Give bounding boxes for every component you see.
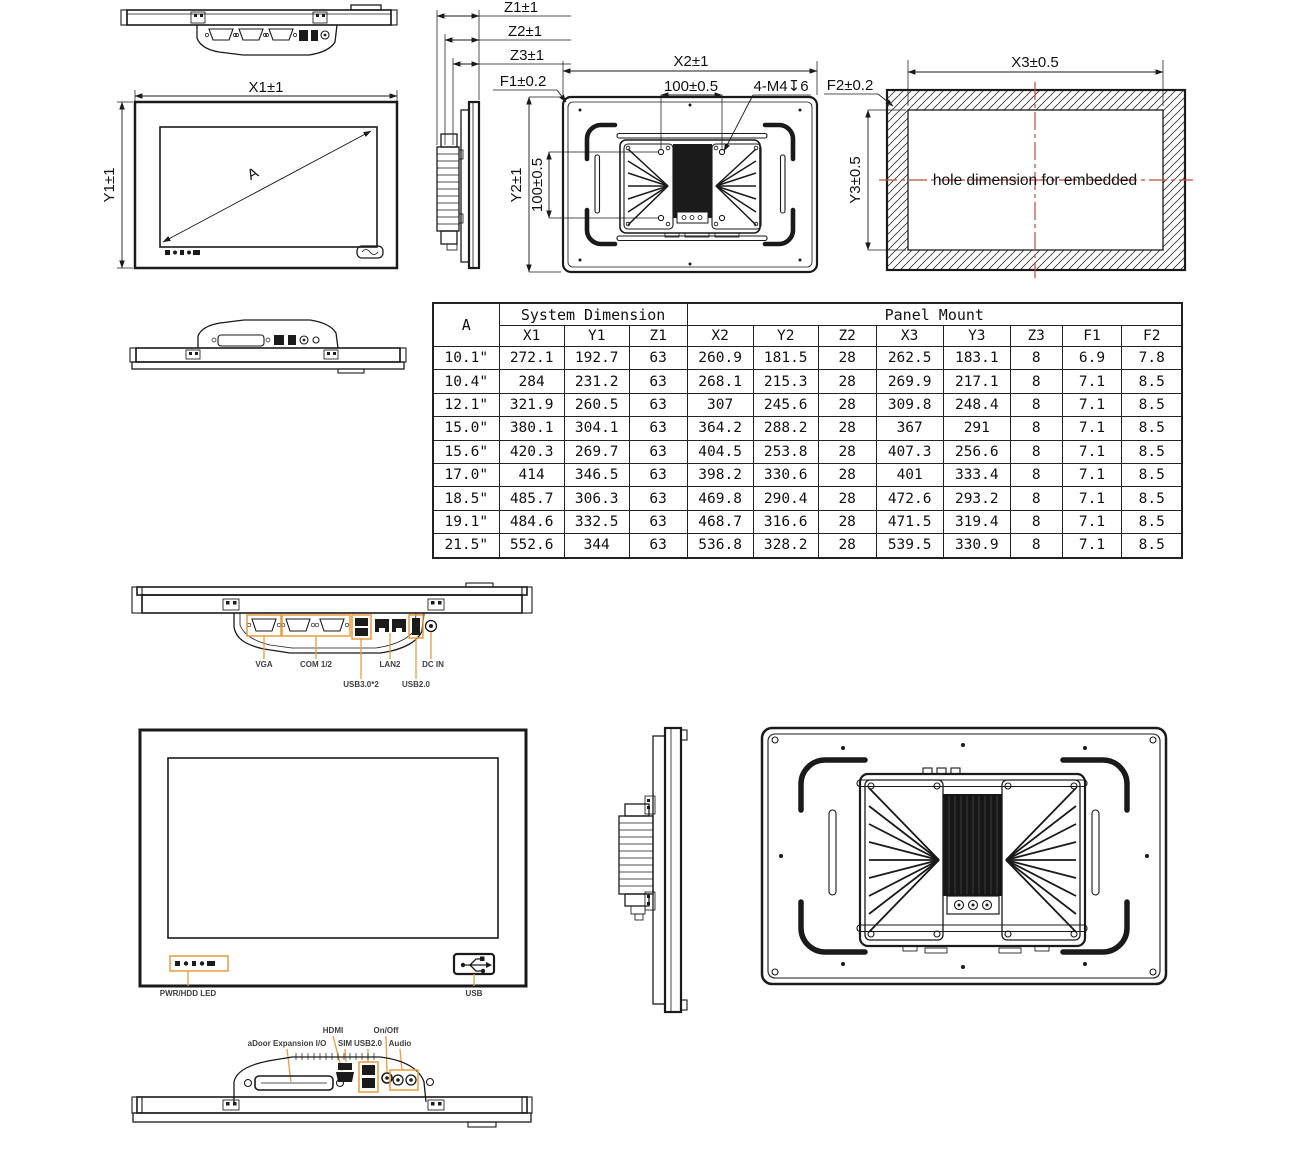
value-cell: 420.3 <box>499 440 564 463</box>
col-y3: Y3 <box>943 326 1010 347</box>
col-x1: X1 <box>499 326 564 347</box>
usb-port <box>311 30 318 41</box>
rear-view-large <box>753 718 1175 998</box>
value-cell: 268.1 <box>687 370 753 393</box>
cutout-view: F2±0.2 X3±0.5 hole dimension for embedde… <box>818 48 1200 284</box>
size-cell: 15.6" <box>433 440 499 463</box>
dim-x2: X2±1 <box>674 53 709 70</box>
value-cell: 293.2 <box>943 487 1010 510</box>
table-row: 17.0"414346.563398.2330.628401333.487.18… <box>433 463 1182 486</box>
value-cell: 7.1 <box>1062 370 1122 393</box>
value-cell: 398.2 <box>687 463 753 486</box>
size-cell: 18.5" <box>433 487 499 510</box>
dim-vesa-v: 100±0.5 <box>529 158 546 212</box>
col-z2: Z2 <box>818 326 876 347</box>
table-row: 10.1"272.1192.763260.9181.528262.5183.18… <box>433 347 1182 370</box>
size-cell: 10.1" <box>433 347 499 370</box>
value-cell: 7.1 <box>1062 463 1122 486</box>
value-cell: 272.1 <box>499 347 564 370</box>
value-cell: 8.5 <box>1122 510 1182 533</box>
value-cell: 28 <box>818 393 876 416</box>
top-io-view: aDoor Expansion I/O HDMI SIM USB2.0 On/O… <box>128 1024 536 1136</box>
col-f1: F1 <box>1062 326 1122 347</box>
value-cell: 192.7 <box>564 347 629 370</box>
table-row: 10.4"284231.263268.1215.328269.9217.187.… <box>433 370 1182 393</box>
side-view-large <box>603 720 707 1020</box>
value-cell: 8 <box>1010 534 1062 558</box>
value-cell: 328.2 <box>753 534 818 558</box>
value-cell: 471.5 <box>876 510 943 533</box>
dim-thread: 4-M4↧6 <box>753 78 808 95</box>
value-cell: 8 <box>1010 347 1062 370</box>
value-cell: 63 <box>629 440 687 463</box>
value-cell: 291 <box>943 417 1010 440</box>
io-leader-lines <box>264 632 431 679</box>
value-cell: 63 <box>629 393 687 416</box>
value-cell: 28 <box>818 440 876 463</box>
value-cell: 380.1 <box>499 417 564 440</box>
antenna-hole <box>427 1079 434 1086</box>
table-row: 19.1"484.6332.563468.7316.628471.5319.48… <box>433 510 1182 533</box>
label-vga: VGA <box>255 660 273 669</box>
value-cell: 484.6 <box>499 510 564 533</box>
dim-z2: Z2±1 <box>508 23 542 40</box>
value-cell: 333.4 <box>943 463 1010 486</box>
value-cell: 536.8 <box>687 534 753 558</box>
value-cell: 63 <box>629 487 687 510</box>
value-cell: 28 <box>818 347 876 370</box>
label-audio: Audio <box>389 1039 412 1048</box>
db-connectors <box>205 29 296 40</box>
cutout-note: hole dimension for embedded <box>933 172 1137 189</box>
table-row: 12.1"321.9260.563307245.628309.8248.487.… <box>433 393 1182 416</box>
vesa-hole <box>719 215 724 220</box>
dim-y3: Y3±0.5 <box>847 156 864 203</box>
label-lan: LAN2 <box>380 660 401 669</box>
value-cell: 63 <box>629 463 687 486</box>
table-row: 18.5"485.7306.363469.8290.428472.6293.28… <box>433 487 1182 510</box>
dim-f2: F2±0.2 <box>827 77 874 94</box>
led-indicator-icons <box>165 250 200 255</box>
usb-logo-badge <box>357 246 383 258</box>
dvi-connector <box>218 335 264 346</box>
value-cell: 183.1 <box>943 347 1010 370</box>
size-cell: 17.0" <box>433 463 499 486</box>
size-cell: 21.5" <box>433 534 499 558</box>
label-usb: USB <box>466 989 483 998</box>
value-cell: 344 <box>564 534 629 558</box>
value-cell: 28 <box>818 534 876 558</box>
col-f2: F2 <box>1122 326 1182 347</box>
value-cell: 7.1 <box>1062 417 1122 440</box>
value-cell: 8 <box>1010 487 1062 510</box>
usb-port <box>299 30 308 41</box>
vesa-hole <box>719 149 724 154</box>
audio-jacks <box>393 1075 416 1085</box>
value-cell: 404.5 <box>687 440 753 463</box>
value-cell: 260.9 <box>687 347 753 370</box>
value-cell: 7.1 <box>1062 510 1122 533</box>
label-expansion: aDoor Expansion I/O <box>248 1039 327 1048</box>
bezel <box>140 730 526 986</box>
value-cell: 8.5 <box>1122 534 1182 558</box>
group-header-system: System Dimension <box>499 303 687 326</box>
usb3-ports <box>355 618 368 636</box>
pc-module <box>620 140 761 237</box>
label-hdmi: HDMI <box>323 1026 343 1035</box>
value-cell: 330.9 <box>943 534 1010 558</box>
value-cell: 539.5 <box>876 534 943 558</box>
value-cell: 8.5 <box>1122 440 1182 463</box>
value-cell: 7.1 <box>1062 440 1122 463</box>
vesa-hole <box>658 149 663 154</box>
value-cell: 7.1 <box>1062 393 1122 416</box>
value-cell: 260.5 <box>564 393 629 416</box>
dim-x1: X1±1 <box>249 79 284 96</box>
value-cell: 7.8 <box>1122 347 1182 370</box>
value-cell: 485.7 <box>499 487 564 510</box>
value-cell: 217.1 <box>943 370 1010 393</box>
table-row: 15.0"380.1304.163364.2288.22836729187.18… <box>433 417 1182 440</box>
label-usb2: USB2.0 <box>402 680 431 689</box>
com-ports <box>281 619 349 631</box>
size-cell: 10.4" <box>433 370 499 393</box>
value-cell: 307 <box>687 393 753 416</box>
value-cell: 28 <box>818 463 876 486</box>
value-cell: 28 <box>818 417 876 440</box>
value-cell: 8 <box>1010 393 1062 416</box>
led-indicators <box>170 956 228 971</box>
value-cell: 7.1 <box>1062 534 1122 558</box>
value-cell: 309.8 <box>876 393 943 416</box>
diagonal-arrow <box>163 131 371 242</box>
value-cell: 215.3 <box>753 370 818 393</box>
value-cell: 256.6 <box>943 440 1010 463</box>
label-usb2: USB2.0 <box>354 1039 383 1048</box>
size-cell: 12.1" <box>433 393 499 416</box>
vesa-hole <box>658 215 663 220</box>
dim-y1: Y1±1 <box>101 168 118 203</box>
front-view-small: X1±1 A Y1±1 <box>105 82 415 276</box>
label-dcin: DC IN <box>422 660 444 669</box>
bottom-edge-small-view <box>128 308 420 374</box>
value-cell: 245.6 <box>753 393 818 416</box>
value-cell: 306.3 <box>564 487 629 510</box>
value-cell: 28 <box>818 370 876 393</box>
value-cell: 288.2 <box>753 417 818 440</box>
dim-z1: Z1±1 <box>504 0 538 16</box>
value-cell: 290.4 <box>753 487 818 510</box>
value-cell: 346.5 <box>564 463 629 486</box>
table-row: 15.6"420.3269.763404.5253.828407.3256.68… <box>433 440 1182 463</box>
value-cell: 8.5 <box>1122 463 1182 486</box>
value-cell: 181.5 <box>753 347 818 370</box>
value-cell: 269.7 <box>564 440 629 463</box>
usb2-ports <box>362 1065 375 1088</box>
usb2-port <box>412 618 420 635</box>
value-cell: 63 <box>629 347 687 370</box>
dim-y2: Y2±1 <box>508 168 525 203</box>
dc-in-jack <box>426 621 437 632</box>
dimension-table: A System Dimension Panel Mount X1 Y1 Z1 … <box>432 302 1183 559</box>
value-cell: 469.8 <box>687 487 753 510</box>
value-cell: 330.6 <box>753 463 818 486</box>
value-cell: 316.6 <box>753 510 818 533</box>
front-view-large: PWR/HDD LED USB <box>136 724 530 1008</box>
top-view-small <box>113 2 405 60</box>
bottom-io-view: VGA COM 1/2 USB3.0*2 LAN2 USB2.0 DC IN <box>128 583 536 695</box>
value-cell: 63 <box>629 417 687 440</box>
value-cell: 63 <box>629 370 687 393</box>
value-cell: 8 <box>1010 510 1062 533</box>
value-cell: 8 <box>1010 370 1062 393</box>
value-cell: 63 <box>629 510 687 533</box>
value-cell: 367 <box>876 417 943 440</box>
lan-ports <box>375 619 406 632</box>
value-cell: 8.5 <box>1122 393 1182 416</box>
size-cell: 15.0" <box>433 417 499 440</box>
value-cell: 248.4 <box>943 393 1010 416</box>
value-cell: 332.5 <box>564 510 629 533</box>
group-header-panel: Panel Mount <box>687 303 1182 326</box>
col-x2: X2 <box>687 326 753 347</box>
rear-view-small: X2±1 100±0.5 4-M4↧6 <box>515 55 827 281</box>
value-cell: 8 <box>1010 440 1062 463</box>
value-cell: 8 <box>1010 417 1062 440</box>
heatsink <box>619 816 653 894</box>
label-sim: SIM <box>338 1039 353 1048</box>
col-z1: Z1 <box>629 326 687 347</box>
value-cell: 304.1 <box>564 417 629 440</box>
value-cell: 253.8 <box>753 440 818 463</box>
dimension-table-wrap: A System Dimension Panel Mount X1 Y1 Z1 … <box>432 302 1183 559</box>
value-cell: 414 <box>499 463 564 486</box>
dimension-table-body: 10.1"272.1192.763260.9181.528262.5183.18… <box>433 347 1182 558</box>
screen <box>168 758 498 938</box>
col-y2: Y2 <box>753 326 818 347</box>
value-cell: 28 <box>818 487 876 510</box>
value-cell: 321.9 <box>499 393 564 416</box>
side-profile <box>437 102 479 268</box>
value-cell: 401 <box>876 463 943 486</box>
diagonal-label: A <box>244 164 261 184</box>
col-y1: Y1 <box>564 326 629 347</box>
value-cell: 6.9 <box>1062 347 1122 370</box>
foot-tab <box>468 1122 496 1127</box>
value-cell: 63 <box>629 534 687 558</box>
value-cell: 472.6 <box>876 487 943 510</box>
value-cell: 284 <box>499 370 564 393</box>
value-cell: 7.1 <box>1062 487 1122 510</box>
value-cell: 8.5 <box>1122 487 1182 510</box>
label-usb3: USB3.0*2 <box>343 680 379 689</box>
value-cell: 28 <box>818 510 876 533</box>
value-cell: 468.7 <box>687 510 753 533</box>
value-cell: 407.3 <box>876 440 943 463</box>
value-cell: 364.2 <box>687 417 753 440</box>
sim-slot <box>338 1063 352 1070</box>
connector-housing <box>198 320 338 348</box>
table-row: 21.5"552.634463536.8328.228539.5330.987.… <box>433 534 1182 558</box>
label-onoff: On/Off <box>374 1026 399 1035</box>
heatsink-block <box>673 144 712 218</box>
value-cell: 8.5 <box>1122 370 1182 393</box>
dim-vesa-h: 100±0.5 <box>664 78 718 95</box>
col-z3: Z3 <box>1010 326 1062 347</box>
dim-x3: X3±0.5 <box>1011 54 1058 71</box>
vga-port <box>247 619 281 631</box>
corner-header: A <box>433 303 499 347</box>
value-cell: 262.5 <box>876 347 943 370</box>
value-cell: 8 <box>1010 463 1062 486</box>
expansion-connector <box>245 1076 344 1090</box>
value-cell: 231.2 <box>564 370 629 393</box>
col-x3: X3 <box>876 326 943 347</box>
value-cell: 8.5 <box>1122 417 1182 440</box>
hdmi-port <box>336 1072 354 1082</box>
engineering-drawing-sheet: X1±1 A Y1±1 Z1±1 Z2±1 Z3±1 F1±0.2 <box>0 0 1305 1171</box>
value-cell: 552.6 <box>499 534 564 558</box>
size-cell: 19.1" <box>433 510 499 533</box>
usb-logo-icon <box>454 954 494 974</box>
value-cell: 319.4 <box>943 510 1010 533</box>
label-pwr-led: PWR/HDD LED <box>160 989 217 998</box>
label-com: COM 1/2 <box>300 660 333 669</box>
value-cell: 269.9 <box>876 370 943 393</box>
